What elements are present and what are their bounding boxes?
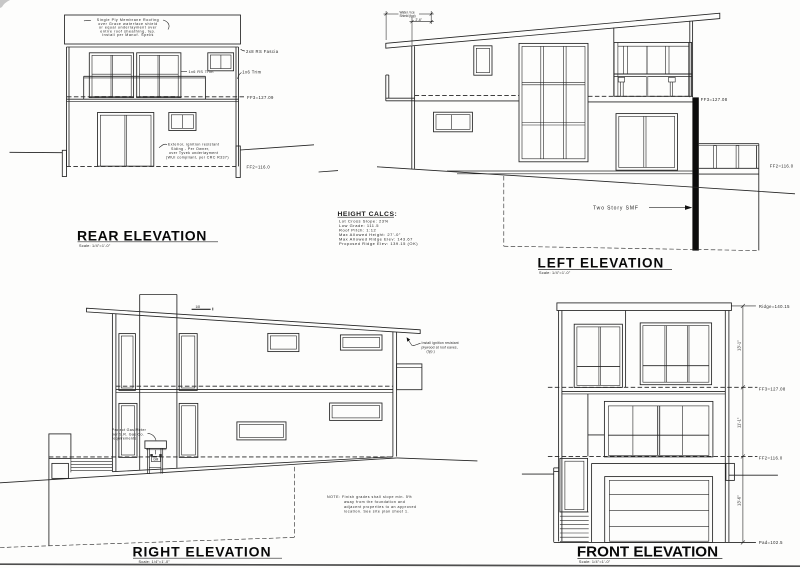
svg-text:Two Story SMF: Two Story SMF: [593, 206, 639, 212]
svg-text:Shield (typ): Shield (typ): [400, 14, 416, 18]
svg-text:1/8: 1/8: [196, 305, 201, 309]
svg-text:(WUI compliant, per CRC R337): (WUI compliant, per CRC R337): [166, 156, 229, 160]
svg-text:13'-1": 13'-1": [737, 340, 742, 351]
svg-text:13'-6": 13'-6": [737, 495, 742, 506]
svg-text:Pad=102.5: Pad=102.5: [759, 540, 783, 545]
svg-text:(typ.): (typ.): [427, 350, 435, 354]
svg-text:FF2=116.0: FF2=116.0: [759, 455, 783, 460]
svg-text:FF2=116.0: FF2=116.0: [770, 164, 794, 169]
svg-text:RIGHT ELEVATION: RIGHT ELEVATION: [133, 543, 272, 559]
svg-text:2x8 RS Fascia: 2x8 RS Fascia: [246, 49, 279, 54]
svg-text:1x6 Trim: 1x6 Trim: [242, 70, 261, 75]
svg-text:Install per Manuf. Specs: Install per Manuf. Specs: [102, 33, 154, 37]
svg-text:location. See site plan sheet: location. See site plan sheet 1.: [344, 510, 409, 514]
svg-text:Scale: 1/4"=1'-0": Scale: 1/4"=1'-0": [139, 560, 171, 564]
svg-text:FF3=127.08: FF3=127.08: [759, 386, 786, 391]
svg-text:FF3=127.09: FF3=127.09: [247, 95, 274, 100]
svg-text:NOTE: Finish grades shall slo: NOTE: Finish grades shall slope min. 5%: [327, 495, 412, 499]
svg-text:REAR ELEVATION: REAR ELEVATION: [77, 227, 207, 243]
svg-text:FF2=116.0: FF2=116.0: [247, 165, 271, 170]
svg-text:Scale: 1/4"=1'-0": Scale: 1/4"=1'-0": [579, 560, 611, 564]
svg-text:11'-1": 11'-1": [737, 417, 742, 428]
svg-text:FRONT ELEVATION: FRONT ELEVATION: [577, 544, 718, 561]
svg-text:2'-6": 2'-6": [416, 18, 422, 22]
svg-text:Scale: 1/4"=1'-0": Scale: 1/4"=1'-0": [539, 271, 571, 275]
svg-text:requirements.: requirements.: [112, 437, 138, 441]
svg-text:away from the foundation and: away from the foundation and: [344, 500, 405, 504]
svg-text:adjacent properties to an appr: adjacent properties to an approved: [344, 505, 417, 509]
svg-text:GM: GM: [153, 458, 158, 462]
svg-text:1x6 RS Trim: 1x6 RS Trim: [189, 70, 214, 74]
svg-text:Ridge=140.15: Ridge=140.15: [759, 304, 790, 309]
svg-text:Proposed Ridge Elev: 139.15 (O: Proposed Ridge Elev: 139.15 (OK): [339, 241, 418, 246]
svg-text:LEFT ELEVATION: LEFT ELEVATION: [538, 256, 665, 271]
svg-text:HEIGHT CALCS:: HEIGHT CALCS:: [338, 211, 398, 218]
svg-text:FF3=127.08: FF3=127.08: [701, 97, 728, 102]
svg-text:Scale: 1/4"=1'-0": Scale: 1/4"=1'-0": [79, 244, 111, 248]
